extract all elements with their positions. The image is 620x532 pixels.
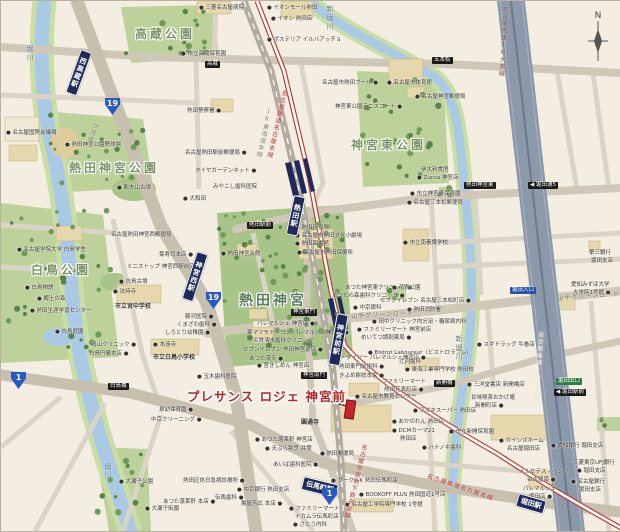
- map-basemap: [1, 1, 620, 531]
- map-canvas[interactable]: N ● 三菱名古屋病院● イオンモール熱田● イオン 熱田店● ポステリア イル…: [0, 0, 620, 532]
